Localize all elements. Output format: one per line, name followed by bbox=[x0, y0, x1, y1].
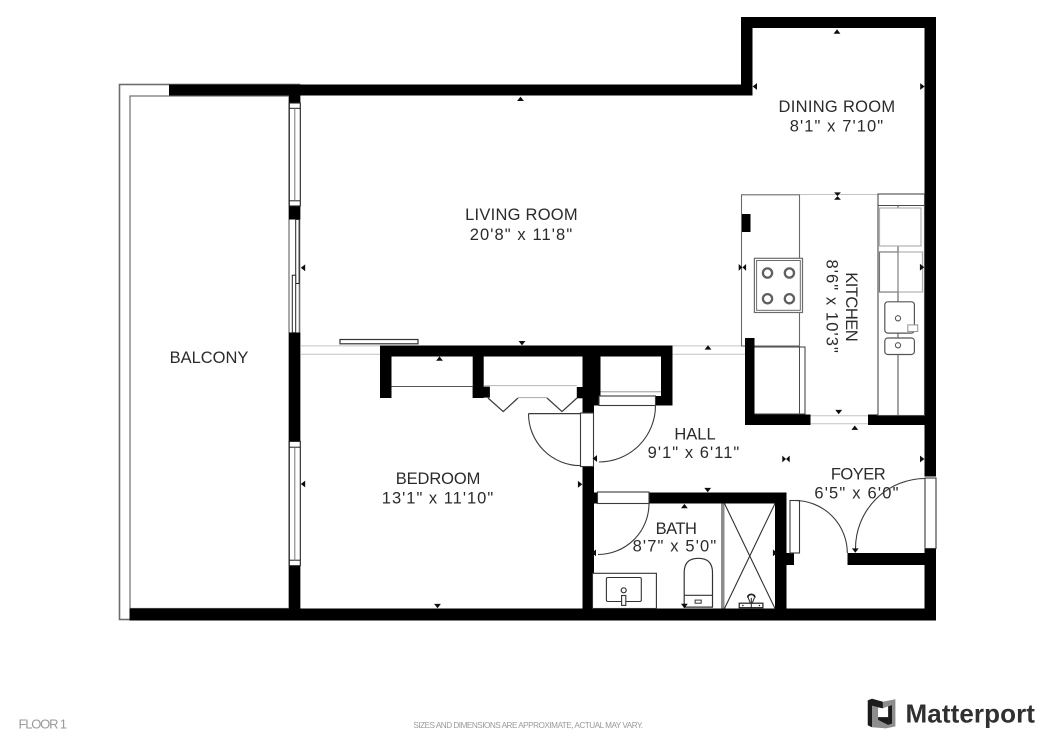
svg-text:6'5" x 6'0": 6'5" x 6'0" bbox=[814, 485, 899, 503]
svg-text:8'1" x 7'10": 8'1" x 7'10" bbox=[790, 118, 885, 136]
svg-text:BEDROOM: BEDROOM bbox=[396, 470, 481, 488]
svg-text:9'1" x 6'11": 9'1" x 6'11" bbox=[648, 444, 741, 462]
svg-text:Matterport: Matterport bbox=[906, 699, 1036, 729]
svg-text:SIZES AND DIMENSIONS ARE APPRO: SIZES AND DIMENSIONS ARE APPROXIMATE, AC… bbox=[413, 721, 643, 730]
svg-text:8'6" x 10'3": 8'6" x 10'3" bbox=[823, 259, 841, 354]
svg-text:BALCONY: BALCONY bbox=[170, 349, 249, 367]
svg-text:KITCHEN: KITCHEN bbox=[842, 272, 860, 341]
svg-text:LIVING ROOM: LIVING ROOM bbox=[465, 206, 578, 224]
svg-text:FLOOR 1: FLOOR 1 bbox=[19, 717, 67, 732]
svg-text:8'7" x 5'0": 8'7" x 5'0" bbox=[633, 538, 718, 556]
svg-text:BATH: BATH bbox=[656, 520, 697, 538]
svg-text:DINING ROOM: DINING ROOM bbox=[779, 98, 896, 116]
svg-text:13'1" x 11'10": 13'1" x 11'10" bbox=[382, 490, 494, 508]
svg-text:FOYER: FOYER bbox=[831, 466, 886, 484]
svg-text:20'8" x 11'8": 20'8" x 11'8" bbox=[470, 226, 574, 244]
svg-text:HALL: HALL bbox=[674, 426, 715, 444]
